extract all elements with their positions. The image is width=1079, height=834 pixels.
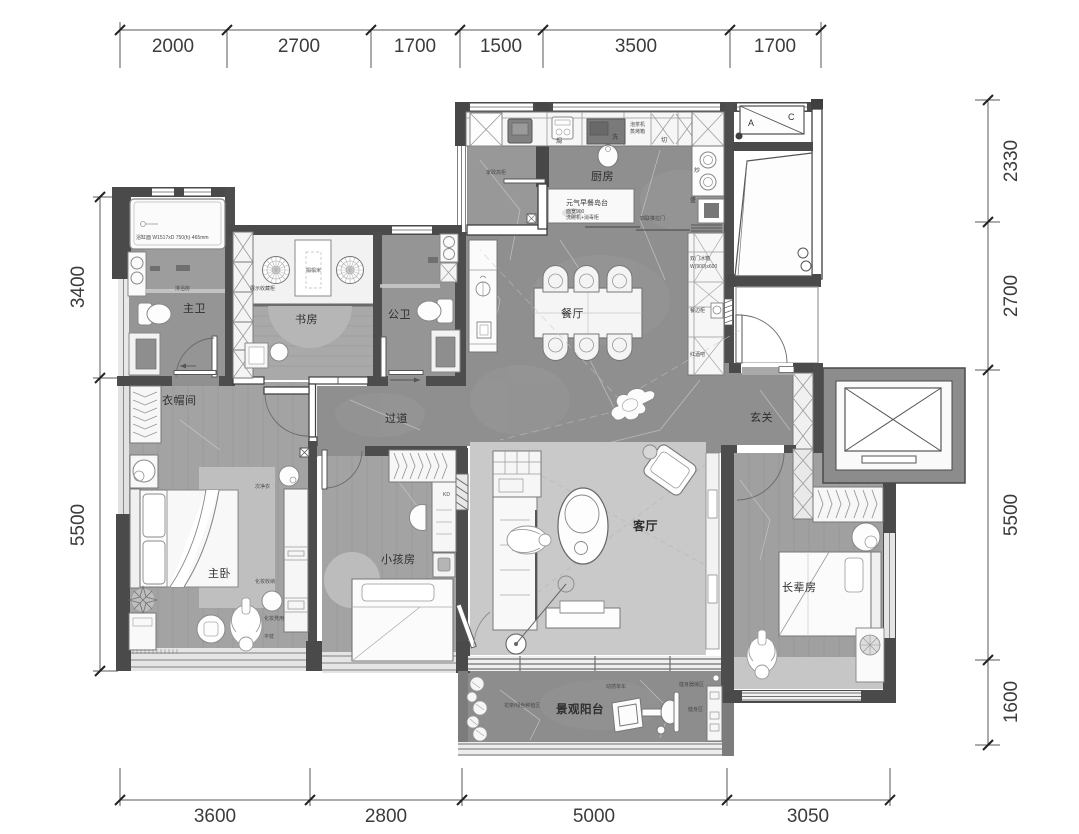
svg-text:主卫: 主卫 xyxy=(183,302,206,315)
svg-text:A: A xyxy=(748,118,754,128)
svg-text:健身区: 健身区 xyxy=(688,706,703,713)
svg-text:四联推拉门: 四联推拉门 xyxy=(640,215,665,222)
svg-text:展示收藏柜: 展示收藏柜 xyxy=(250,285,275,292)
svg-text:长辈房: 长辈房 xyxy=(782,580,817,594)
svg-text:动感单车: 动感单车 xyxy=(606,683,626,690)
svg-text:榻榻米: 榻榻米 xyxy=(306,267,321,274)
svg-text:切: 切 xyxy=(661,137,667,144)
svg-text:1700: 1700 xyxy=(754,36,796,57)
svg-text:健身器械区: 健身器械区 xyxy=(679,681,704,688)
svg-text:化妆凳用: 化妆凳用 xyxy=(264,615,284,622)
svg-text:公卫: 公卫 xyxy=(388,309,411,321)
svg-text:2000: 2000 xyxy=(152,36,194,57)
svg-text:2700: 2700 xyxy=(278,36,320,57)
svg-text:双门冰箱: 双门冰箱 xyxy=(690,255,710,262)
svg-text:5500: 5500 xyxy=(68,504,89,546)
svg-text:5000: 5000 xyxy=(573,806,615,827)
svg-text:小孩房: 小孩房 xyxy=(381,553,416,566)
svg-text:蒸烤箱: 蒸烤箱 xyxy=(630,128,645,135)
svg-text:主卧: 主卧 xyxy=(208,567,231,580)
svg-text:平枕: 平枕 xyxy=(264,633,274,640)
svg-text:盛: 盛 xyxy=(690,196,696,204)
svg-text:书房: 书房 xyxy=(295,313,318,326)
svg-text:3500: 3500 xyxy=(615,36,657,57)
svg-text:面宽900: 面宽900 xyxy=(566,208,585,215)
svg-text:1500: 1500 xyxy=(480,36,522,57)
svg-text:玄关: 玄关 xyxy=(750,410,773,424)
svg-text:花架/绿色种植区: 花架/绿色种植区 xyxy=(504,702,540,709)
svg-text:炒: 炒 xyxy=(694,167,700,174)
svg-text:2330: 2330 xyxy=(1001,140,1022,182)
svg-text:KD: KD xyxy=(443,492,450,498)
svg-text:2800: 2800 xyxy=(365,806,407,827)
svg-text:C: C xyxy=(788,112,795,122)
svg-text:客厅: 客厅 xyxy=(632,518,658,533)
svg-text:过道: 过道 xyxy=(385,411,408,425)
svg-text:洗碗机+消毒柜: 洗碗机+消毒柜 xyxy=(566,214,599,221)
svg-text:洗: 洗 xyxy=(612,133,618,141)
svg-text:衣帽间: 衣帽间 xyxy=(162,393,197,407)
svg-text:红酒吧: 红酒吧 xyxy=(690,351,705,358)
svg-text:景观阳台: 景观阳台 xyxy=(555,702,604,716)
svg-text:家政高柜: 家政高柜 xyxy=(486,169,506,176)
svg-text:餐厅: 餐厅 xyxy=(561,306,584,320)
svg-text:厨房: 厨房 xyxy=(591,170,614,183)
svg-text:焗: 焗 xyxy=(556,137,562,145)
svg-text:餐边柜: 餐边柜 xyxy=(690,307,705,314)
svg-text:5500: 5500 xyxy=(1001,494,1022,536)
svg-text:W(900)x600: W(900)x600 xyxy=(690,264,717,270)
svg-text:2700: 2700 xyxy=(1001,275,1022,317)
svg-text:元气早餐岛台: 元气早餐岛台 xyxy=(566,198,608,207)
svg-text:3400: 3400 xyxy=(68,266,89,308)
svg-text:浴缸面 W1517xD 750(h)·465mm: 浴缸面 W1517xD 750(h)·465mm xyxy=(136,234,209,241)
svg-text:3050: 3050 xyxy=(787,806,829,827)
svg-text:淋浴房: 淋浴房 xyxy=(175,285,190,292)
svg-text:3600: 3600 xyxy=(194,806,236,827)
svg-text:次净衣: 次净衣 xyxy=(255,483,270,490)
svg-text:化妆收纳: 化妆收纳 xyxy=(255,578,275,585)
svg-text:1700: 1700 xyxy=(394,36,436,57)
svg-text:泡茶机: 泡茶机 xyxy=(630,121,645,128)
svg-text:1600: 1600 xyxy=(1001,681,1022,723)
